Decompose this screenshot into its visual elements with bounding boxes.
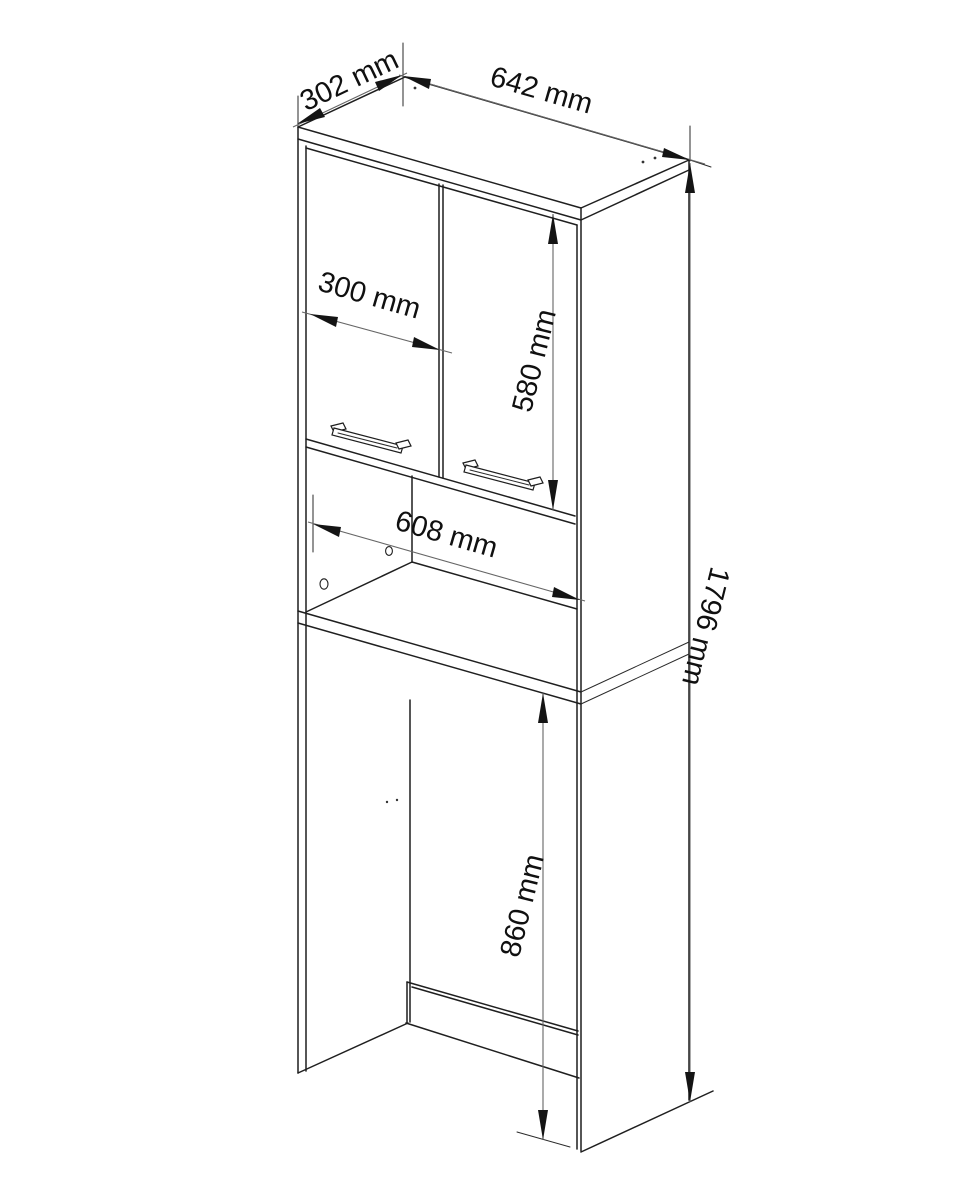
niche-floor-left-edge [306,562,412,612]
dimension-niche-width: 608 mm [308,495,585,601]
arrowhead [538,693,548,723]
fitting-mark [386,801,388,803]
doors-top-edge [306,148,577,225]
arrowhead [548,480,558,510]
arrowhead [310,314,338,327]
top-panel-right-thickness [581,170,689,220]
dimension-door-height: 580 mm [506,214,562,510]
handle-post [396,440,411,449]
arrowhead [662,148,690,160]
arrowhead [685,163,695,193]
mid-board-top-side-edge [581,642,689,692]
fitting-mark [396,799,398,801]
shelf-pin-hole [320,579,328,589]
dimension-label-niche-width: 608 mm [392,505,502,565]
plinth-bottom-edge [406,1023,579,1078]
dimension-label-appliance-space: 860 mm [494,851,550,960]
dimension-depth: 302 mm [293,43,407,127]
arrowhead [313,524,341,537]
cabinet-carcass [298,77,713,1152]
arrowhead [412,337,440,350]
fitting-mark [642,161,645,164]
niche-floor-rear-edge [412,562,577,609]
mid-board-top-front-edge [298,611,581,692]
doors-bottom-edge [306,439,575,516]
left-door-handle [331,423,411,453]
handle-highlight [470,470,529,485]
cabinet-drawing-canvas: 302 mm 642 mm 300 mm 580 mm [0,0,973,1200]
dimension-annotations: 302 mm 642 mm 300 mm 580 mm [293,43,735,1147]
dimension-label-total-height: 1796 mm [675,564,735,689]
dimension-label-door-height: 580 mm [506,306,562,415]
plinth-top-front-edge [407,982,578,1031]
dimension-total-height: 1796 mm [675,163,735,1102]
right-panel-floor-edge [581,1091,713,1152]
handle-post [528,477,543,486]
plinth-top-rear-edge [412,987,578,1035]
dimension-width: 642 mm [399,61,711,167]
dimension-label-width: 642 mm [487,61,597,121]
mid-board-bottom-front-edge [298,623,581,704]
dimension-door-width: 300 mm [302,266,452,353]
dimension-appliance-space-height: 860 mm [494,693,570,1147]
arrowhead [685,1072,695,1102]
door-handles [331,423,543,490]
arrowhead [552,587,580,600]
mid-board-bottom-side-edge [581,654,689,704]
right-door-handle [463,460,543,490]
fitting-mark [414,87,417,90]
top-panel-right-edge [581,160,689,208]
rear-plinth [406,982,579,1078]
arrowhead [403,76,431,89]
technical-drawing-page: 302 mm 642 mm 300 mm 580 mm [0,0,973,1200]
shelf-pin-hole [386,547,393,556]
fitting-mark [654,157,657,160]
handle-highlight [338,433,397,448]
left-panel-floor-edge [298,1023,408,1073]
arrowhead [538,1110,548,1140]
